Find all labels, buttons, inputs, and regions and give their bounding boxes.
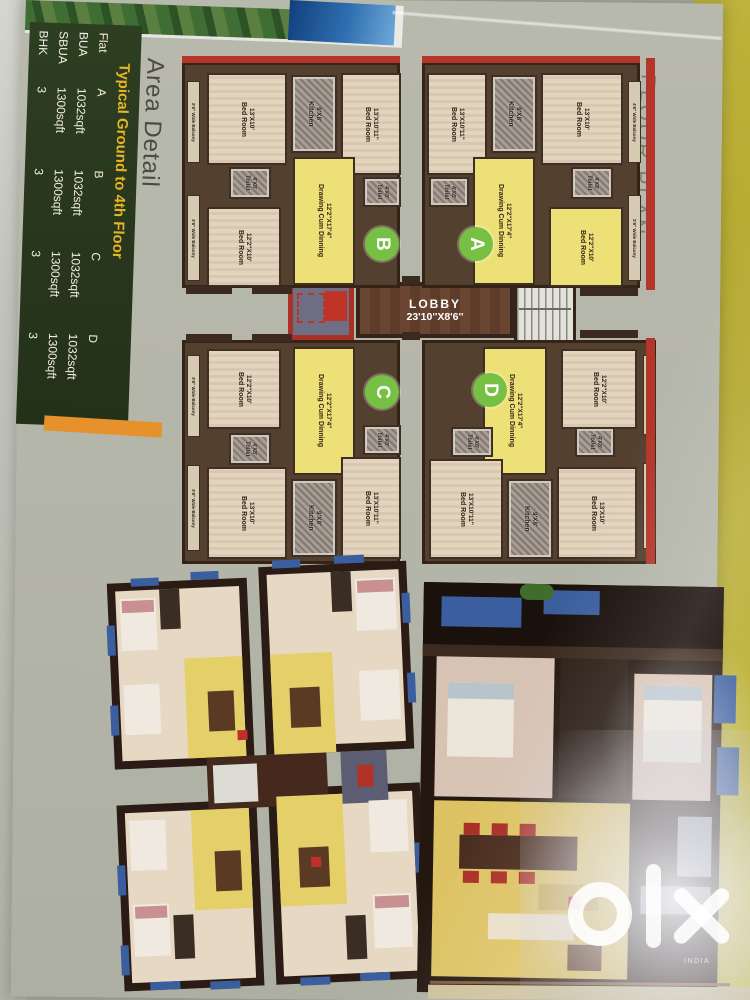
- render-block: [190, 571, 218, 580]
- render-block: [714, 675, 737, 723]
- render-block: [519, 872, 535, 884]
- room-label: Toilet4'X8': [588, 434, 602, 450]
- render-block: [357, 579, 393, 593]
- render-block: [644, 686, 702, 701]
- room-label: Bed Room12'2''X10': [578, 230, 594, 265]
- render-block: [464, 823, 480, 835]
- render-block: [357, 764, 374, 787]
- wall-accent: [580, 288, 638, 296]
- room-label: Toilet4'X8': [442, 184, 456, 200]
- render-block: [334, 555, 364, 564]
- room-bed_b: Bed Room13'X10'11'': [341, 457, 401, 559]
- room-label: Bed Room12'2''X10': [591, 372, 607, 407]
- table-surface-strip: [428, 985, 750, 1000]
- room-label: Bed Room13'X10': [574, 102, 590, 137]
- render-block: [463, 871, 479, 883]
- render-block: [129, 819, 167, 871]
- render-block: [215, 850, 243, 891]
- lift-cabin: [325, 291, 347, 321]
- render-block: [330, 571, 352, 612]
- room-kitchen: Kitchen9'X8': [507, 479, 553, 559]
- render-block: [121, 945, 130, 975]
- room-kitchen: Kitchen9'X8': [291, 479, 337, 557]
- room-label: Bed Room12'2''X10': [236, 230, 252, 265]
- room-label: Bed Room13'X10': [589, 496, 605, 531]
- render-block: [123, 684, 161, 736]
- room-bed_c: Bed Room12'2''X10': [207, 349, 281, 429]
- render-block: [359, 669, 401, 721]
- render-block: [131, 578, 159, 587]
- room-label: Toilet4'X8': [243, 175, 257, 191]
- room-kitchen: Kitchen9'X8': [491, 75, 537, 153]
- unit-letter-badge: B: [365, 227, 399, 261]
- 3d-floor-render: [102, 552, 430, 991]
- render-block: [272, 559, 300, 568]
- unit-D: Drawing Cum Dinning12'2''X17'4''Bed Room…: [422, 340, 656, 564]
- room-toilet: Toilet4'X8': [429, 177, 469, 207]
- wall-accent: [402, 276, 420, 284]
- room-label: Bed Room13'X10'11'': [458, 492, 474, 527]
- unit-letter-badge: C: [365, 375, 399, 409]
- unit-C: Bed Room12'2''X10'Drawing Cum Dinning12'…: [182, 340, 400, 564]
- render-block: [150, 981, 180, 990]
- render-block: [407, 672, 416, 702]
- render-block: [237, 730, 247, 740]
- render-block: [208, 690, 236, 731]
- room-bed_a: Bed Room13'X10': [557, 467, 637, 559]
- balcony: 3'6'' Wide Balcony: [187, 465, 200, 551]
- room-label: Drawing Cum Dinning12'2''X17'4'': [316, 374, 332, 447]
- render-block: [173, 914, 195, 959]
- room-label: Toilet4'X8': [585, 175, 599, 191]
- wall-accent: [186, 286, 232, 294]
- room-bed_c: Bed Room12'2''X10': [549, 207, 623, 287]
- room-bed_c: Bed Room12'2''X10': [207, 207, 281, 287]
- room-drawing: Drawing Cum Dinning12'2''X17'4'': [293, 157, 355, 285]
- room-bed_c: Bed Room12'2''X10': [561, 349, 637, 429]
- render-block: [159, 589, 181, 630]
- room-label: Bed Room12'2''X10': [236, 372, 252, 407]
- room-label: Toilet4'X8': [375, 184, 389, 200]
- wall-accent: [580, 330, 638, 338]
- lobby-dims: 23'10''X8'6'': [406, 311, 463, 323]
- wall-accent: [646, 58, 655, 290]
- balcony: 3'6'' Wide Balcony: [187, 355, 200, 437]
- room-toilet: Toilet4'X8': [229, 167, 271, 199]
- room-label: Kitchen9'X8': [506, 101, 522, 127]
- render-block: [213, 763, 259, 803]
- room-toilet: Toilet4'X8': [575, 427, 615, 457]
- render-block: [110, 705, 119, 735]
- render-block: [520, 584, 554, 601]
- balcony: 2'6'' Wide Balcony: [187, 81, 200, 163]
- render-block: [210, 980, 240, 989]
- olx-letter-l-icon: [646, 864, 661, 948]
- render-block: [107, 626, 116, 656]
- render-block: [135, 905, 167, 918]
- render-block: [716, 747, 739, 795]
- wall-accent: [402, 332, 420, 340]
- room-label: Drawing Cum Dinning12'2''X17'4'': [496, 184, 512, 257]
- room-label: Bed Room13'X10': [239, 496, 255, 531]
- room-label: Kitchen9'X8': [522, 506, 538, 532]
- render-block: [558, 658, 628, 799]
- room-toilet: Toilet4'X8': [229, 433, 271, 465]
- balcony: 4'6'' Wide Balcony: [628, 81, 641, 163]
- room-label: Bed Room13'X10': [239, 102, 255, 137]
- render-block: [117, 865, 126, 895]
- room-drawing: Drawing Cum Dinning12'2''X17'4'': [293, 347, 355, 475]
- room-label: Toilet4'X8': [465, 434, 479, 450]
- render-block: [448, 682, 514, 699]
- room-label: Drawing Cum Dinning12'2''X17'4'': [507, 374, 523, 447]
- wall-accent: [186, 334, 232, 342]
- unit-B: Bed Room13'X10'Kitchen9'X8'Bed Room13'X1…: [182, 62, 400, 288]
- room-label: Bed Room13'X10'11'': [363, 491, 379, 526]
- olx-sub-text: INDIA: [684, 958, 710, 965]
- wall-accent: [646, 338, 655, 564]
- room-label: Drawing Cum Dinning12'2''X17'4'': [316, 184, 332, 257]
- room-toilet: Toilet4'X8': [571, 167, 613, 199]
- unit-letter-badge: A: [459, 227, 493, 261]
- render-block: [122, 600, 154, 613]
- render-block: [368, 799, 408, 853]
- wall-accent: [252, 334, 292, 342]
- lobby: LOBBY 23'10''X8'6'': [356, 282, 514, 338]
- room-drawing: Drawing Cum Dinning12'2''X17'4'': [473, 157, 535, 285]
- room-bed_a: Bed Room13'X10': [207, 73, 287, 165]
- olx-watermark: INDIA: [566, 858, 750, 973]
- stair-landing-line: [519, 308, 571, 310]
- render-block: [491, 871, 507, 883]
- wall-accent: [182, 56, 400, 63]
- render-block: [300, 976, 330, 985]
- lobby-label: LOBBY: [409, 297, 461, 311]
- room-label: Bed Room13'X10'11'': [449, 107, 465, 142]
- room-kitchen: Kitchen9'X8': [291, 75, 337, 153]
- render-block: [289, 687, 321, 728]
- room-label: Kitchen9'X8': [306, 505, 322, 531]
- wall-accent: [252, 286, 292, 294]
- render-block: [441, 596, 522, 627]
- balcony: 2'6'' Wide Balcony: [628, 195, 641, 281]
- render-block: [360, 972, 390, 981]
- room-bed_b: Bed Room13'X10'11'': [429, 459, 503, 559]
- photo-stage: Typical Ground to 4th Floor Flat A B C D…: [0, 0, 750, 1000]
- render-block: [311, 857, 321, 867]
- room-toilet: Toilet4'X8': [363, 177, 401, 207]
- room-toilet: Toilet4'X8': [451, 427, 493, 457]
- wall-accent: [422, 56, 640, 63]
- render-block: [401, 593, 410, 623]
- unit-letter-badge: D: [473, 373, 507, 407]
- render-block: [492, 823, 508, 835]
- render-block: [375, 895, 409, 908]
- room-label: Kitchen9'X8': [306, 101, 322, 127]
- render-block: [459, 835, 578, 871]
- room-toilet: Toilet4'X8': [363, 425, 401, 455]
- balcony: 3'6'' Wide Balcony: [187, 195, 200, 281]
- olx-letter-o-icon: [568, 882, 632, 946]
- room-bed_a: Bed Room13'X10': [541, 73, 623, 165]
- room-label: Bed Room13'X10'11'': [363, 107, 379, 142]
- render-block: [520, 824, 536, 836]
- room-bed_a: Bed Room13'X10': [207, 467, 287, 559]
- room-label: Toilet4'X8': [243, 441, 257, 457]
- room-label: Toilet4'X8': [375, 432, 389, 448]
- render-block: [488, 913, 574, 940]
- render-block: [345, 915, 367, 960]
- unit-A: Bed Room13'X10'11''Kitchen9'X8'Bed Room1…: [422, 62, 640, 288]
- lift-door-outline: [297, 293, 325, 323]
